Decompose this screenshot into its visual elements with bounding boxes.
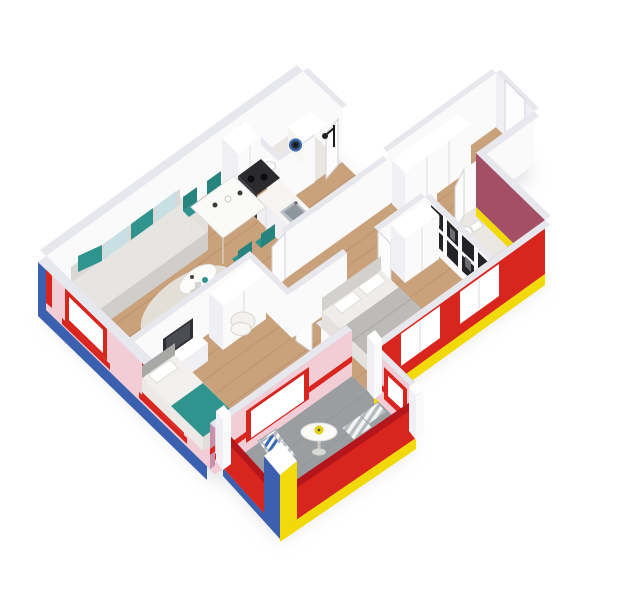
floor-plan-svg bbox=[0, 0, 639, 593]
place-setting bbox=[238, 191, 243, 196]
cap-pillar-facade-junction bbox=[367, 330, 382, 399]
stove-burner bbox=[248, 176, 255, 183]
kitchen-faucet bbox=[294, 201, 297, 204]
bistro-table-base bbox=[312, 449, 326, 456]
place-setting bbox=[213, 203, 218, 208]
hall-bathroom-wall-b bbox=[464, 161, 476, 215]
plate-food bbox=[318, 429, 321, 432]
cap-pillar-balcony-east bbox=[409, 381, 424, 440]
cap-pillar-balcony-west bbox=[216, 405, 231, 470]
serving-bowl bbox=[225, 196, 231, 202]
laundry-shower-head bbox=[322, 133, 328, 139]
floor-plan-render bbox=[0, 0, 639, 593]
coffee-table-cup bbox=[190, 275, 194, 279]
stove-burner bbox=[261, 174, 268, 181]
washing-machine-door-glass bbox=[294, 143, 298, 147]
armchair-seat bbox=[231, 323, 251, 336]
corner-pillar bbox=[264, 442, 297, 533]
